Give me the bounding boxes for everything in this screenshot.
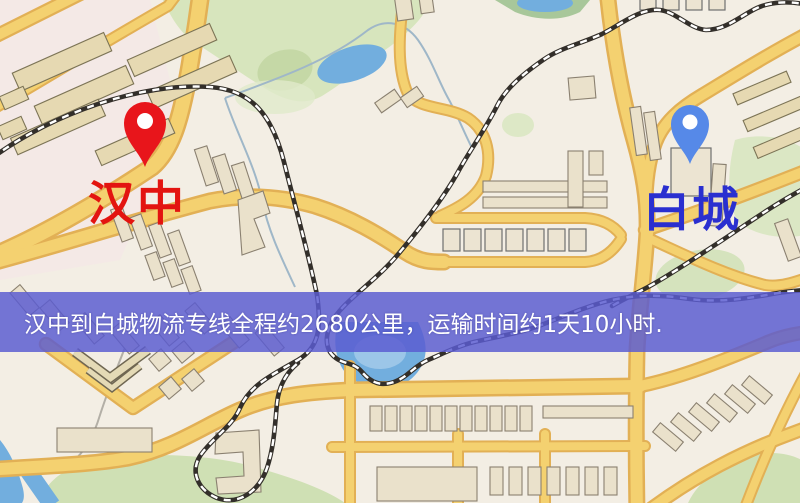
map-canvas: 汉中 白城	[0, 0, 800, 503]
route-info-text: 汉中到白城物流专线全程约2680公里，运输时间约1天10小时.	[0, 305, 663, 339]
pin-hole	[137, 113, 153, 129]
destination-city-label: 白城	[643, 183, 741, 238]
pin-hole	[683, 115, 698, 130]
logistics-route-map: 汉中 白城 汉中到白城物流专线全程约2680公里，运输时间约1天10小时.	[0, 0, 800, 503]
route-info-banner: 汉中到白城物流专线全程约2680公里，运输时间约1天10小时.	[0, 292, 800, 352]
origin-city-label: 汉中	[88, 177, 186, 232]
